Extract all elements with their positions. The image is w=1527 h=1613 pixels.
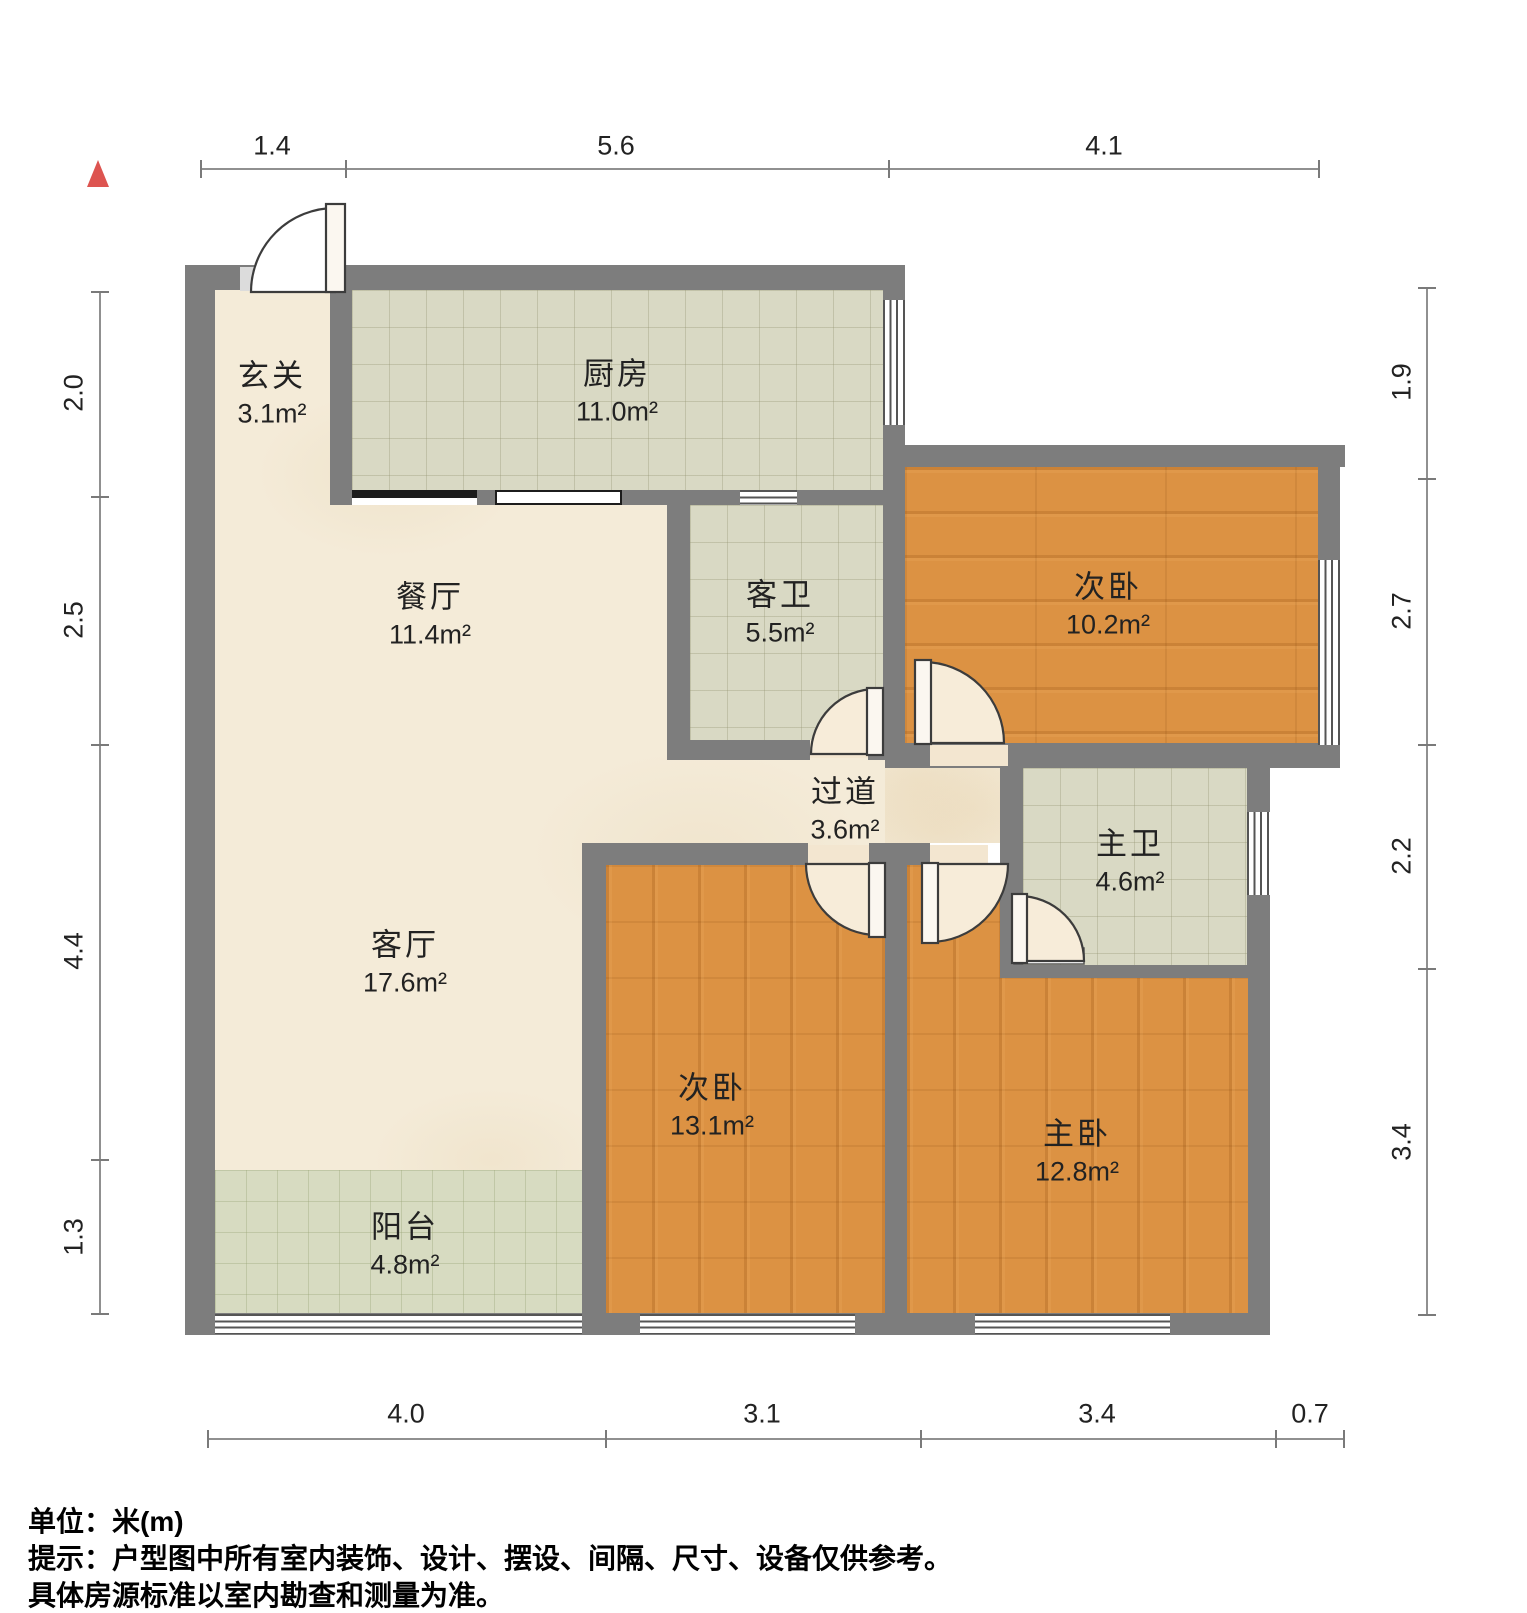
room-name: 玄关 — [238, 351, 306, 396]
room-area: 3.1m² — [237, 399, 306, 430]
room-area: 4.8m² — [370, 1250, 439, 1281]
guestbath-door-leaf — [867, 688, 883, 755]
room-name: 餐厅 — [396, 572, 464, 617]
room-name: 主卫 — [1096, 819, 1164, 864]
floorplan-image: 玄关 3.1m² 厨房 11.0m² 餐厅 11.4m² 客卫 5.5m² 次卧… — [0, 0, 1527, 1613]
room-label-guest-bath: 客卫 5.5m² — [745, 570, 814, 649]
entrance-door-arc — [251, 208, 335, 292]
masterbath-door-arc — [1019, 896, 1084, 961]
room-label-bedroom-2: 次卧 10.2m² — [1066, 562, 1150, 641]
room-label-entry: 玄关 3.1m² — [237, 351, 306, 430]
room-area: 10.2m² — [1066, 610, 1150, 641]
room-label-master-bath: 主卫 4.6m² — [1095, 819, 1164, 898]
room-label-kitchen: 厨房 11.0m² — [576, 349, 658, 428]
room-area: 11.0m² — [576, 397, 658, 428]
room-name: 次卧 — [678, 1063, 746, 1108]
room-label-bedroom-3: 次卧 13.1m² — [670, 1063, 754, 1142]
entrance-door-leaf — [326, 204, 345, 292]
room-name: 过道 — [811, 767, 879, 812]
masterbath-door-leaf — [1012, 894, 1027, 963]
room-name: 阳台 — [371, 1202, 439, 1247]
room-label-balcony: 阳台 4.8m² — [370, 1202, 439, 1281]
room-name: 次卧 — [1074, 562, 1142, 607]
room-area: 11.4m² — [389, 620, 471, 651]
room-name: 客厅 — [371, 920, 439, 965]
master-door-leaf — [922, 863, 938, 943]
room-label-dining: 餐厅 11.4m² — [389, 572, 471, 651]
room-name: 主卧 — [1043, 1109, 1111, 1154]
room-area: 17.6m² — [363, 968, 447, 999]
bedroom2-door-leaf — [915, 660, 931, 744]
room-name: 客卫 — [746, 570, 814, 615]
room-area: 5.5m² — [745, 618, 814, 649]
door-swings-layer — [0, 0, 1527, 1613]
room-label-master-bedroom: 主卧 12.8m² — [1035, 1109, 1119, 1188]
master-door-arc — [930, 864, 1008, 942]
room-area: 12.8m² — [1035, 1157, 1119, 1188]
room-label-hallway: 过道 3.6m² — [810, 767, 879, 846]
room-name: 厨房 — [583, 349, 651, 394]
room-area: 13.1m² — [670, 1111, 754, 1142]
room-area: 4.6m² — [1095, 867, 1164, 898]
bedroom2-door-arc — [923, 662, 1004, 743]
room-area: 3.6m² — [810, 815, 879, 846]
bedroom3-door-arc — [806, 864, 877, 935]
bedroom3-door-leaf — [869, 863, 885, 937]
room-label-living: 客厅 17.6m² — [363, 920, 447, 999]
